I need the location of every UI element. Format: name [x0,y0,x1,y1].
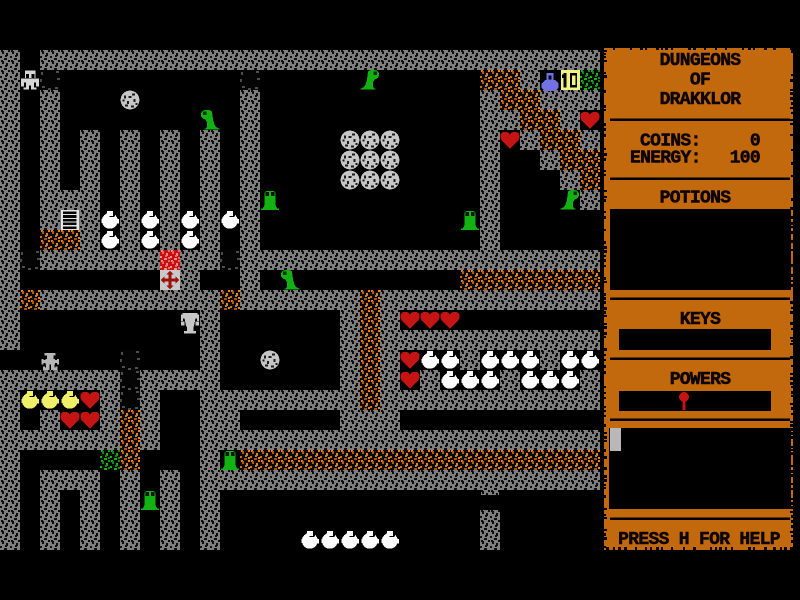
svg-text:OF: OF [690,71,710,91]
svg-text:PRESS H FOR HELP: PRESS H FOR HELP [618,530,781,550]
svg-text:KEYS: KEYS [680,310,721,330]
svg-text:ENERGY:: ENERGY: [630,149,701,169]
svg-text:POWERS: POWERS [670,370,732,390]
svg-text:DUNGEONS: DUNGEONS [660,51,742,71]
svg-text:DRAKKLOR: DRAKKLOR [660,90,742,110]
svg-text:100: 100 [730,149,760,169]
svg-text:POTIONS: POTIONS [660,189,732,209]
